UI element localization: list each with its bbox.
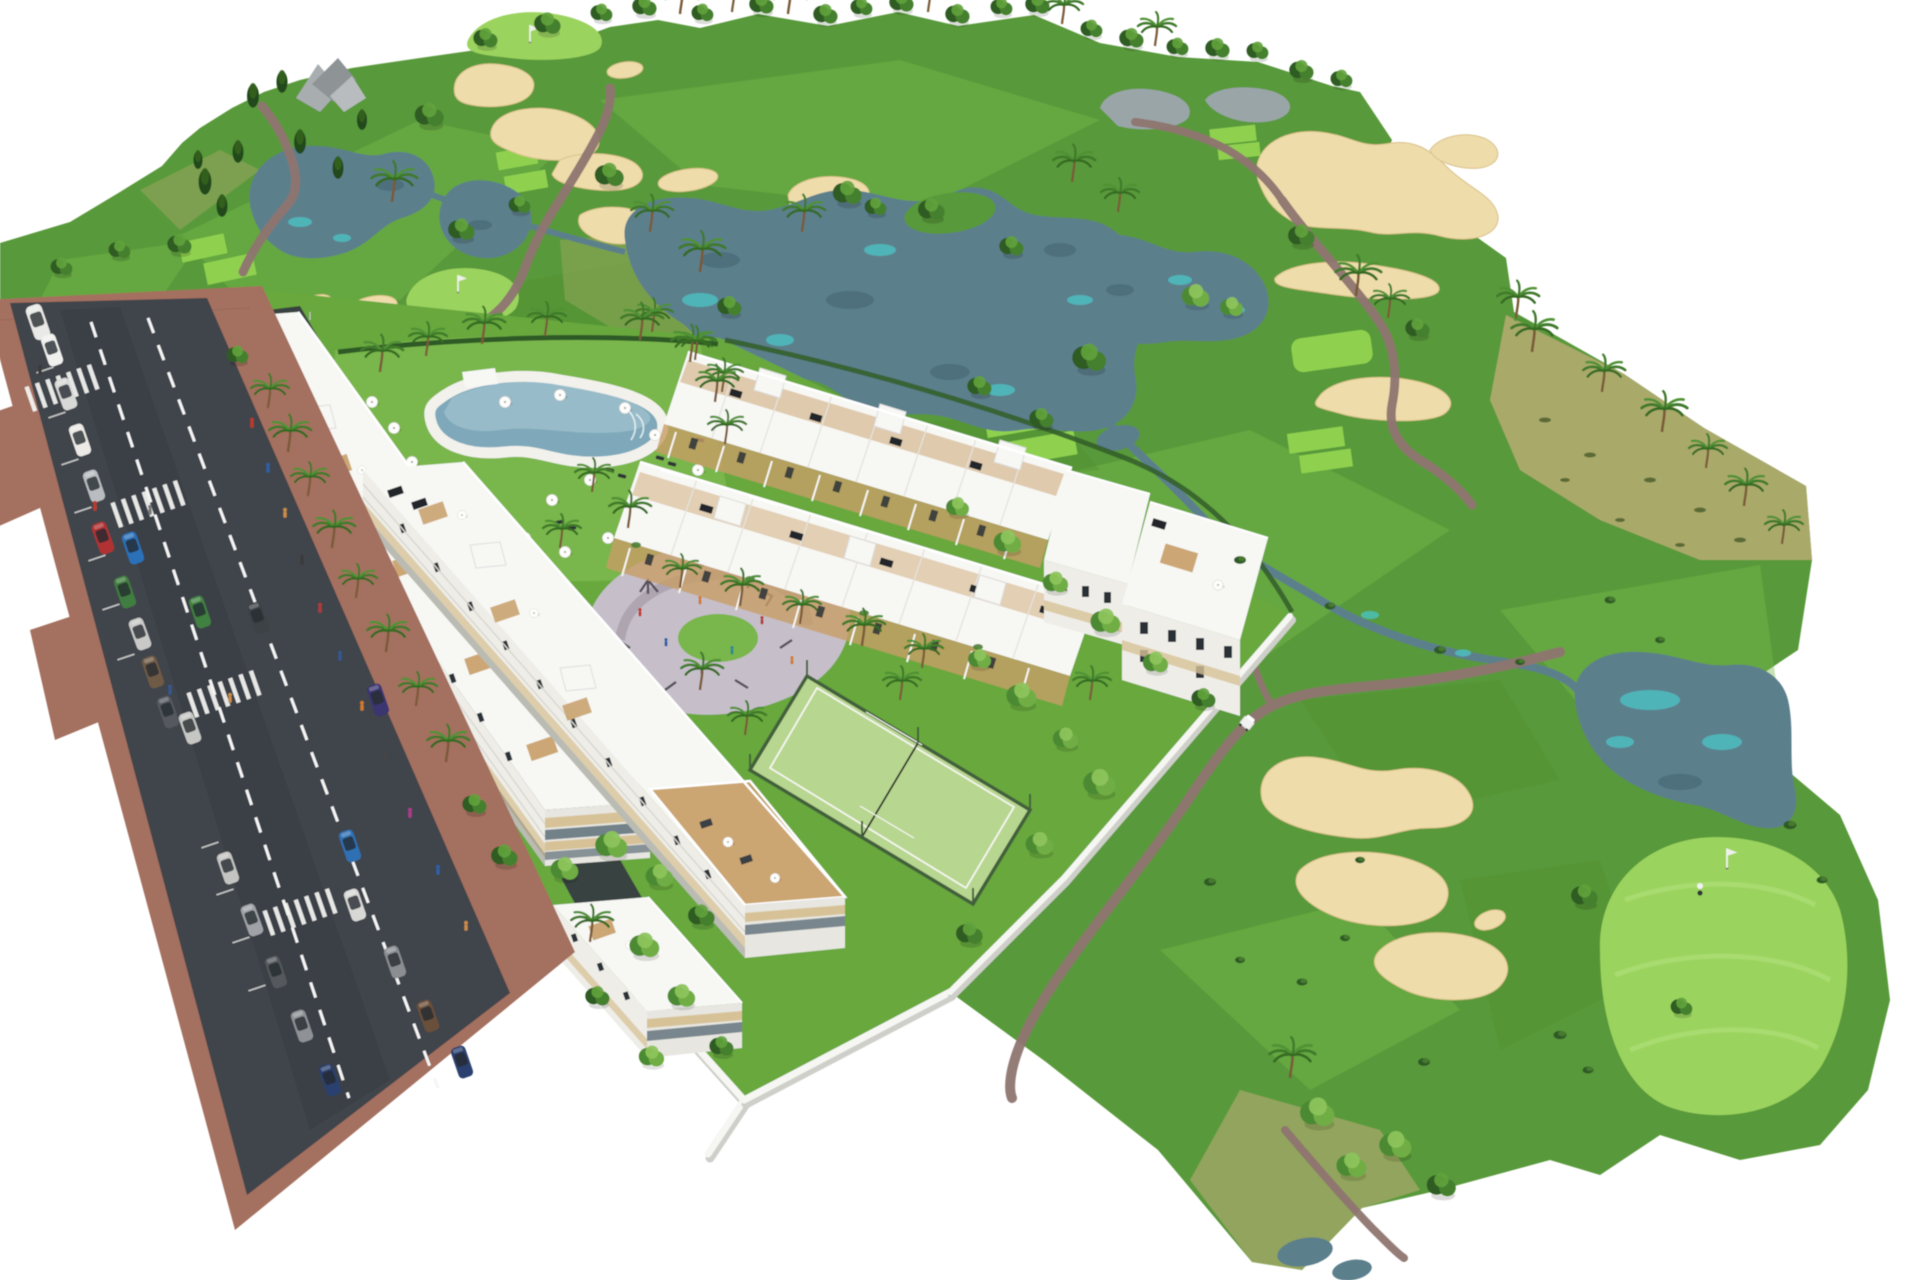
- render-canvas: [0, 0, 1920, 1280]
- aerial-render: [0, 0, 1920, 1280]
- putting-green-main: [1600, 837, 1847, 1115]
